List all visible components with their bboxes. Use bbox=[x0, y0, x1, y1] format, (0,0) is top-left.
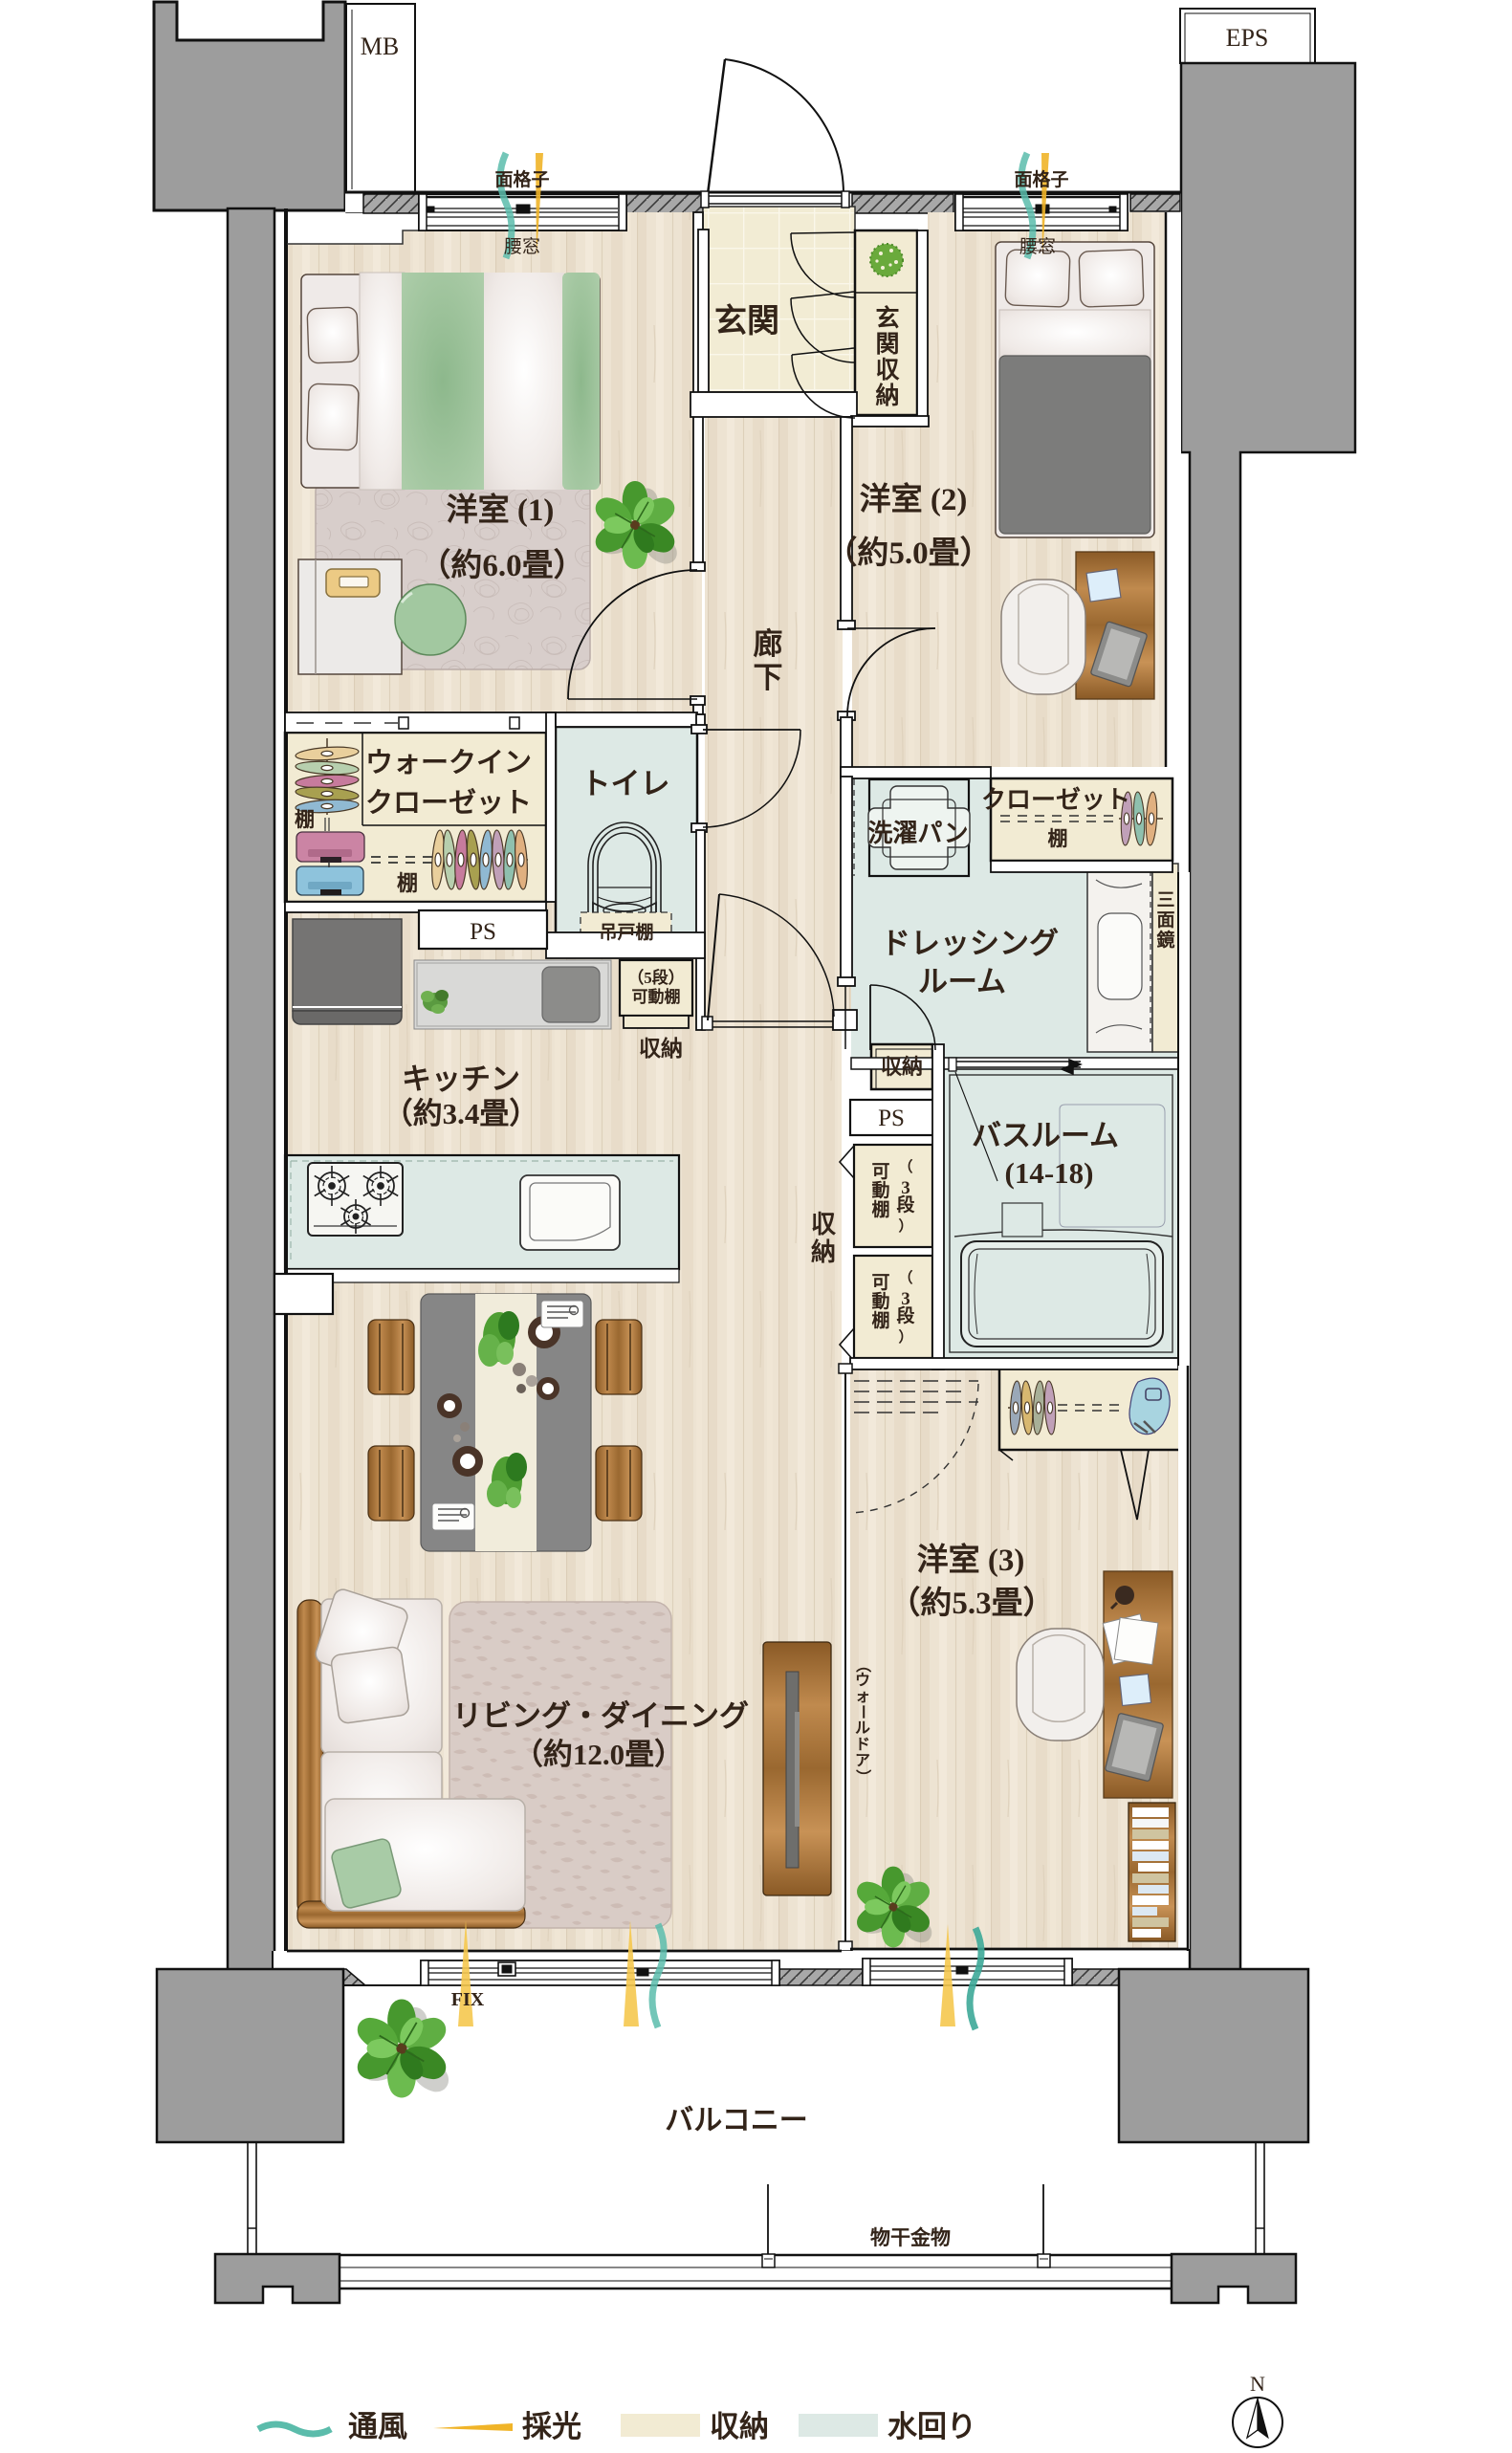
svg-text:クローゼット: クローゼット bbox=[365, 787, 532, 819]
svg-text:収納: 収納 bbox=[710, 2410, 769, 2443]
svg-text:三: 三 bbox=[1156, 890, 1174, 910]
svg-text:玄: 玄 bbox=[875, 304, 899, 332]
svg-text:収: 収 bbox=[811, 1211, 837, 1238]
svg-text:（約3.4畳）: （約3.4畳） bbox=[383, 1097, 539, 1130]
svg-text:PS: PS bbox=[470, 919, 496, 945]
svg-text:ル: ル bbox=[855, 1720, 870, 1737]
svg-text:キッチン: キッチン bbox=[402, 1062, 520, 1096]
svg-text:（約12.0畳）: （約12.0畳） bbox=[514, 1738, 684, 1771]
svg-text:面格子: 面格子 bbox=[1014, 168, 1068, 190]
svg-text:可: 可 bbox=[871, 1273, 889, 1293]
svg-text:水回り: 水回り bbox=[887, 2410, 976, 2443]
svg-text:トイレ: トイレ bbox=[581, 767, 670, 800]
svg-text:物干金物: 物干金物 bbox=[870, 2226, 951, 2249]
svg-text:棚: 棚 bbox=[871, 1309, 889, 1331]
svg-text:）: ） bbox=[854, 1769, 871, 1785]
svg-text:クローゼット: クローゼット bbox=[981, 786, 1130, 814]
svg-text:収: 収 bbox=[875, 357, 900, 383]
svg-text:バルコニー: バルコニー bbox=[665, 2105, 807, 2136]
svg-text:段: 段 bbox=[896, 1194, 915, 1216]
svg-text:EPS: EPS bbox=[1226, 24, 1269, 52]
svg-text:動: 動 bbox=[871, 1291, 889, 1312]
svg-text:納: 納 bbox=[811, 1237, 836, 1266]
svg-text:）: ） bbox=[898, 1328, 912, 1346]
svg-text:洋室 (2): 洋室 (2) bbox=[860, 481, 968, 517]
svg-text:棚: 棚 bbox=[871, 1198, 889, 1220]
svg-text:面: 面 bbox=[1156, 910, 1174, 931]
svg-text:）: ） bbox=[898, 1217, 912, 1235]
svg-text:MB: MB bbox=[361, 33, 399, 60]
svg-text:面格子: 面格子 bbox=[494, 168, 549, 190]
svg-text:収納: 収納 bbox=[639, 1036, 683, 1061]
svg-text:（: （ bbox=[854, 1657, 871, 1673]
svg-text:腰窓: 腰窓 bbox=[1019, 236, 1056, 257]
svg-text:ウ: ウ bbox=[855, 1672, 870, 1689]
svg-text:段: 段 bbox=[896, 1304, 915, 1326]
svg-text:ルーム: ルーム bbox=[918, 965, 1006, 998]
svg-text:収納: 収納 bbox=[881, 1055, 923, 1079]
svg-text:バスルーム: バスルーム bbox=[972, 1119, 1119, 1152]
svg-text:（約6.0畳）: （約6.0畳） bbox=[419, 548, 584, 583]
svg-text:PS: PS bbox=[878, 1106, 905, 1131]
svg-text:ドレッシング: ドレッシング bbox=[881, 927, 1059, 960]
svg-text:（: （ bbox=[898, 1158, 912, 1175]
svg-text:ー: ー bbox=[854, 1704, 870, 1719]
svg-text:ォ: ォ bbox=[855, 1689, 870, 1705]
svg-text:棚: 棚 bbox=[295, 808, 315, 831]
svg-text:可動棚: 可動棚 bbox=[632, 987, 681, 1006]
svg-text:ウォークイン: ウォークイン bbox=[365, 747, 532, 778]
svg-text:洋室 (1): 洋室 (1) bbox=[447, 492, 555, 528]
svg-text:（約5.3畳）: （約5.3畳） bbox=[888, 1586, 1054, 1621]
svg-text:玄関: 玄関 bbox=[714, 303, 779, 339]
svg-text:腰窓: 腰窓 bbox=[504, 236, 540, 257]
svg-text:可: 可 bbox=[871, 1162, 889, 1182]
svg-text:関: 関 bbox=[875, 332, 899, 358]
svg-text:洗濯パン: 洗濯パン bbox=[867, 820, 968, 847]
svg-text:下: 下 bbox=[754, 661, 783, 694]
svg-text:棚: 棚 bbox=[397, 871, 418, 895]
svg-text:棚: 棚 bbox=[1048, 827, 1068, 850]
svg-text:ド: ド bbox=[855, 1737, 870, 1753]
svg-text:廊: 廊 bbox=[754, 627, 783, 661]
svg-text:納: 納 bbox=[875, 382, 899, 409]
svg-text:洋室 (3): 洋室 (3) bbox=[917, 1542, 1025, 1578]
svg-text:吊戸棚: 吊戸棚 bbox=[599, 921, 653, 943]
svg-text:N: N bbox=[1250, 2372, 1265, 2396]
svg-text:（約5.0畳）: （約5.0畳） bbox=[825, 536, 991, 571]
svg-text:リビング・ダイニング: リビング・ダイニング bbox=[452, 1699, 749, 1733]
svg-text:(14-18): (14-18) bbox=[1005, 1156, 1094, 1190]
svg-text:FIX: FIX bbox=[451, 1989, 485, 2010]
svg-text:（: （ bbox=[898, 1269, 912, 1286]
svg-text:鏡: 鏡 bbox=[1156, 929, 1174, 951]
svg-text:採光: 採光 bbox=[522, 2410, 581, 2443]
svg-text:（5段）: （5段） bbox=[627, 968, 685, 987]
svg-text:ア: ア bbox=[855, 1753, 870, 1769]
svg-text:動: 動 bbox=[871, 1180, 889, 1201]
svg-text:通風: 通風 bbox=[348, 2410, 407, 2443]
